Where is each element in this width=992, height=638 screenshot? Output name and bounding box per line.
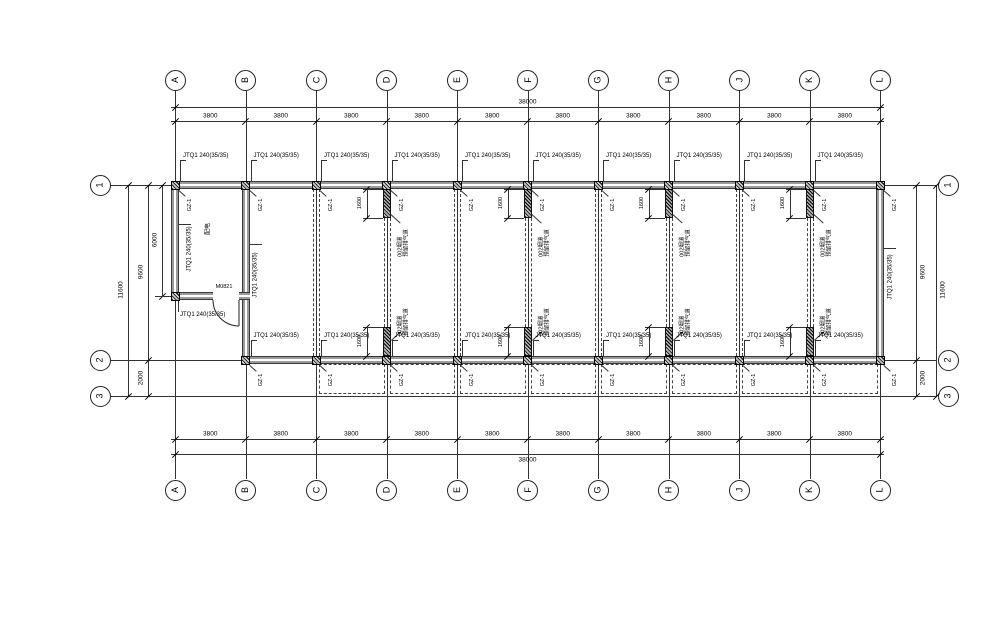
column (805, 181, 814, 190)
axis-bubble-label: F (523, 77, 533, 83)
stub-label-line2: 预留排气道 (827, 229, 833, 257)
room-label: 配电 (206, 223, 213, 235)
axis-bubble-bottom-6: G (588, 480, 609, 501)
column-tag: GZ-1 (257, 199, 263, 212)
door-swing-arc (210, 298, 246, 332)
leader-line (672, 214, 682, 223)
grid-line-3 (111, 396, 937, 397)
axis-bubble-label: K (804, 487, 814, 493)
stub-label-line1: 002烟道 (820, 308, 826, 336)
leader-line (319, 190, 326, 197)
wall-axis-B (242, 181, 250, 364)
partition-line (672, 218, 673, 327)
column-tag: GZ-1 (539, 199, 545, 212)
dim-text-bay-top: 3800 (697, 112, 711, 119)
dim-extension-line (392, 340, 393, 356)
grid-line-D (387, 91, 388, 479)
column-tag: GZ-1 (610, 374, 616, 387)
wall-label-top: JTQ1 240(35/35) (254, 153, 299, 160)
dim-line-right-total (936, 185, 937, 396)
stub-label: 002烟道预留排气道 (820, 229, 833, 257)
axis-bubble-bottom-0: A (165, 480, 186, 501)
dim-line-left-total (128, 185, 129, 396)
stub-label: 002烟道预留排气道 (397, 229, 410, 257)
column (594, 356, 603, 365)
dim-text-bay-top: 3800 (626, 112, 640, 119)
dim-text-bay-bottom: 3800 (485, 430, 499, 437)
stub-label: 002烟道预留排气道 (679, 229, 692, 257)
dim-text-bay-top: 3800 (838, 112, 852, 119)
axis-bubble-bottom-7: H (658, 480, 679, 501)
stub-wall (806, 189, 814, 218)
axis-bubble-bottom-1: B (235, 480, 256, 501)
axis-bubble-label: D (382, 77, 392, 84)
wall-label-top: JTQ1 240(35/35) (465, 153, 510, 160)
wall-axis-L (876, 181, 884, 364)
column (382, 356, 391, 365)
column-tag: GZ-1 (892, 199, 898, 212)
axis-bubble-label: G (593, 76, 603, 83)
column (312, 356, 321, 365)
dim-extension-line (815, 160, 816, 181)
stub-label-line2: 预留排气道 (404, 308, 410, 336)
leader-line (249, 365, 256, 372)
dim-extension-line (321, 340, 322, 356)
stub-label-line2: 预留排气道 (827, 308, 833, 336)
axis-bubble-label: G (593, 486, 603, 493)
stub-label-line2: 预留排气道 (686, 308, 692, 336)
column (735, 356, 744, 365)
column (523, 181, 532, 190)
dim-extension-line (674, 340, 675, 356)
wall-label-top: JTQ1 240(35/35) (747, 153, 792, 160)
dim-line-total-bottom (171, 454, 884, 455)
leader-line (460, 190, 467, 197)
partition-line (601, 189, 602, 356)
column (453, 356, 462, 365)
axis-bubble-bottom-4: E (447, 480, 468, 501)
axis-bubble-label: C (311, 487, 321, 494)
stub-label-line1: 002烟道 (538, 229, 544, 257)
stub-wall (524, 189, 532, 218)
leader-line (531, 214, 541, 223)
stub-wall (383, 189, 391, 218)
leader-line (601, 190, 608, 197)
dim-text-room-depth: 6000 (151, 233, 158, 247)
axis-bubble-label: F (523, 487, 533, 493)
axis-bubble-top-7: H (658, 70, 679, 91)
dim-extension-line (533, 340, 534, 356)
wall-label-top: JTQ1 240(35/35) (324, 153, 369, 160)
dim-line-stub (367, 327, 368, 356)
leader-line (813, 214, 823, 223)
grid-line-E (457, 91, 458, 479)
axis-bubble-label: H (664, 487, 674, 494)
wall-axis-A (171, 181, 179, 300)
dim-extension-line (250, 244, 262, 245)
stub-wall (665, 189, 673, 218)
dim-extension-line (815, 340, 816, 356)
dim-extension-line (533, 160, 534, 181)
column (664, 356, 673, 365)
dim-line-left-main (148, 185, 149, 396)
partition-line (595, 189, 596, 356)
leader-line (672, 190, 679, 197)
dim-text-stub: 1600 (356, 197, 362, 209)
stub-wall (383, 327, 391, 356)
column (171, 181, 180, 190)
dim-text-left-canopy: 2000 (137, 371, 144, 385)
axis-bubble-label: 1 (943, 182, 953, 187)
partition-line (736, 189, 737, 356)
axis-bubble-label: A (170, 487, 180, 493)
axis-bubble-label: H (664, 77, 674, 84)
column-tag: GZ-1 (821, 199, 827, 212)
axis-bubble-left-2: 3 (90, 386, 111, 407)
wall-label-bottom: JTQ1 240(35/35) (465, 333, 510, 340)
dim-text-total-bottom: 38000 (518, 456, 536, 463)
partition-line (460, 189, 461, 356)
stub-label-line1: 002烟道 (679, 229, 685, 257)
dim-extension-line (251, 340, 252, 356)
axis-bubble-bottom-9: K (799, 480, 820, 501)
leader-line (390, 190, 397, 197)
dim-extension-line (180, 160, 181, 181)
dim-text-bay-bottom: 3800 (203, 430, 217, 437)
partition-line (742, 189, 743, 356)
stub-wall (806, 327, 814, 356)
grid-line-K (810, 91, 811, 479)
column-tag: GZ-1 (398, 199, 404, 212)
dim-text-stub: 1600 (497, 197, 503, 209)
grid-line-J (739, 91, 740, 479)
dim-extension-line (603, 340, 604, 356)
dim-line-stub (790, 189, 791, 218)
column-tag: GZ-1 (257, 374, 263, 387)
column-tag: GZ-1 (680, 199, 686, 212)
column (241, 356, 250, 365)
axis-bubble-label: B (240, 487, 250, 493)
dim-text-bay-top: 3800 (556, 112, 570, 119)
column-tag: GZ-1 (398, 374, 404, 387)
dim-text-bay-top: 3800 (485, 112, 499, 119)
leader-line (883, 365, 890, 372)
axis-bubble-bottom-3: D (376, 480, 397, 501)
axis-bubble-top-4: E (447, 70, 468, 91)
leader-line (390, 214, 400, 223)
axis-bubble-top-0: A (165, 70, 186, 91)
axis-bubble-label: 1 (95, 182, 105, 187)
dim-line-stub (790, 327, 791, 356)
axis-bubble-label: 3 (943, 393, 953, 398)
axis-bubble-bottom-10: L (870, 480, 891, 501)
column-tag: GZ-1 (539, 374, 545, 387)
axis-bubble-top-1: B (235, 70, 256, 91)
column (735, 181, 744, 190)
axis-bubble-top-8: J (729, 70, 750, 91)
dim-extension-line (462, 160, 463, 181)
column-tag: GZ-1 (680, 374, 686, 387)
axis-bubble-top-5: F (517, 70, 538, 91)
wall-label-bottom: JTQ1 240(35/35) (747, 333, 792, 340)
axis-bubble-label: K (804, 77, 814, 83)
stub-label-line1: 002烟道 (397, 229, 403, 257)
axis-bubble-label: E (452, 77, 462, 83)
stub-label-line1: 002烟道 (397, 308, 403, 336)
wall-label-top: JTQ1 240(35/35) (536, 153, 581, 160)
axis-bubble-top-6: G (588, 70, 609, 91)
wall-label-bottom: JTQ1 240(35/35) (818, 333, 863, 340)
dim-extension-line (155, 296, 171, 297)
dim-text-total-top: 38000 (518, 98, 536, 105)
grid-line-F (528, 91, 529, 479)
column (453, 181, 462, 190)
leader-line (249, 190, 256, 197)
column-tag: GZ-1 (821, 374, 827, 387)
stub-label: 002烟道预留排气道 (538, 308, 551, 336)
grid-line-H (669, 91, 670, 479)
axis-bubble-top-9: K (799, 70, 820, 91)
dim-extension-line (674, 160, 675, 181)
wall-label-bottom: JTQ1 240(35/35) (677, 333, 722, 340)
stub-label-line1: 002烟道 (820, 229, 826, 257)
column-tag: GZ-1 (751, 374, 757, 387)
axis-bubble-label: B (240, 77, 250, 83)
partition-line (384, 218, 385, 327)
partition-line (525, 218, 526, 327)
column (664, 181, 673, 190)
axis-bubble-label: 2 (943, 357, 953, 362)
column (312, 181, 321, 190)
dim-text-stub: 1600 (779, 197, 785, 209)
column (805, 356, 814, 365)
dim-extension-line (744, 340, 745, 356)
leader-line (883, 190, 890, 197)
axis-bubble-label: J (734, 78, 744, 83)
dim-line-stub (367, 189, 368, 218)
partition-line (666, 218, 667, 327)
column-tag: GZ-1 (469, 374, 475, 387)
column (523, 356, 532, 365)
partition-line (319, 189, 320, 356)
dim-extension-line (744, 160, 745, 181)
stub-wall (665, 327, 673, 356)
wall-label-top: JTQ1 240(35/35) (395, 153, 440, 160)
stub-label-line2: 预留排气道 (545, 308, 551, 336)
stub-label: 002烟道预留排气道 (820, 308, 833, 336)
column (171, 292, 180, 301)
column-tag: GZ-1 (328, 199, 334, 212)
grid-line-G (598, 91, 599, 479)
stub-label: 002烟道预留排气道 (397, 308, 410, 336)
axis-bubble-right-1: 2 (938, 350, 959, 371)
dim-text-bay-bottom: 3800 (767, 430, 781, 437)
column-tag: GZ-1 (751, 199, 757, 212)
column-tag: GZ-1 (328, 374, 334, 387)
column (382, 181, 391, 190)
axis-bubble-bottom-8: J (729, 480, 750, 501)
floor-plan-canvas: AABBCCDDEEFFGGHHJJKKLL123123380038003800… (0, 0, 992, 638)
stub-label-line2: 预留排气道 (686, 229, 692, 257)
dim-text-right-canopy: 2000 (919, 371, 926, 385)
axis-bubble-label: J (734, 488, 744, 493)
axis-bubble-label: C (311, 77, 321, 84)
dim-line-right-main (916, 185, 917, 396)
stub-wall (524, 327, 532, 356)
dim-text-bay-top: 3800 (203, 112, 217, 119)
leader-line (813, 190, 820, 197)
dim-text-stub: 1600 (638, 197, 644, 209)
partition-line (813, 218, 814, 327)
column (241, 181, 250, 190)
dim-extension-line (462, 340, 463, 356)
column (594, 181, 603, 190)
dim-text-bay-bottom: 3800 (415, 430, 429, 437)
dim-text-right-total: 11600 (939, 281, 946, 299)
dim-line-stub (508, 189, 509, 218)
dim-line-stub (649, 327, 650, 356)
axis-bubble-right-2: 3 (938, 386, 959, 407)
wall-label-top: JTQ1 240(35/35) (818, 153, 863, 160)
partition-line (531, 218, 532, 327)
axis-bubble-label: D (382, 487, 392, 494)
axis-bubble-label: 3 (95, 393, 105, 398)
axis-bubble-top-3: D (376, 70, 397, 91)
dim-text-bay-top: 3800 (767, 112, 781, 119)
column-tag: GZ-1 (892, 374, 898, 387)
wall-label-bottom: JTQ1 240(35/35) (395, 333, 440, 340)
dim-extension-line (179, 224, 191, 225)
dim-extension-line (178, 301, 179, 312)
axis-bubble-label: 2 (95, 357, 105, 362)
stub-label-line2: 预留排气道 (545, 229, 551, 257)
partition-line (313, 189, 314, 356)
axis-bubble-label: L (875, 77, 885, 82)
dim-extension-line (884, 248, 896, 249)
axis-bubble-top-10: L (870, 70, 891, 91)
axis-bubble-label: A (170, 77, 180, 83)
wall-label-bottom: JTQ1 240(35/35) (324, 333, 369, 340)
dim-extension-line (392, 160, 393, 181)
partition-line (454, 189, 455, 356)
stub-label: 002烟道预留排气道 (679, 308, 692, 336)
wall-label-top: JTQ1 240(35/35) (606, 153, 651, 160)
wall-label-bottom: JTQ1 240(35/35) (536, 333, 581, 340)
dim-text-right-main: 9600 (919, 265, 926, 279)
dim-text-left-main: 9600 (137, 265, 144, 279)
dim-text-bay-top: 3800 (344, 112, 358, 119)
axis-bubble-left-0: 1 (90, 175, 111, 196)
dim-line-stub (649, 189, 650, 218)
stub-label: 002烟道预留排气道 (538, 229, 551, 257)
dim-extension-line (321, 160, 322, 181)
dim-text-bay-top: 3800 (274, 112, 288, 119)
wall-label-top: JTQ1 240(35/35) (183, 153, 228, 160)
axis-bubble-top-2: C (306, 70, 327, 91)
dim-text-bay-bottom: 3800 (274, 430, 288, 437)
dim-text-bay-bottom: 3800 (626, 430, 640, 437)
wall-label-vert-A: JTQ1 240(35/35) (187, 226, 194, 271)
dim-text-left-total: 11600 (117, 281, 124, 299)
dim-text-bay-bottom: 3800 (344, 430, 358, 437)
dim-text-bay-bottom: 3800 (556, 430, 570, 437)
axis-bubble-bottom-2: C (306, 480, 327, 501)
column-tag: GZ-1 (187, 199, 193, 212)
axis-bubble-label: E (452, 487, 462, 493)
wall-label-top: JTQ1 240(35/35) (677, 153, 722, 160)
axis-bubble-bottom-5: F (517, 480, 538, 501)
dim-extension-line (603, 160, 604, 181)
wall-label-bottom: JTQ1 240(35/35) (254, 333, 299, 340)
column (876, 356, 885, 365)
door-label: M0821 (216, 284, 233, 290)
leader-line (742, 190, 749, 197)
axis-bubble-label: L (875, 487, 885, 492)
leader-line (531, 190, 538, 197)
partition-line (807, 218, 808, 327)
stub-label-line1: 002烟道 (538, 308, 544, 336)
partition-line (390, 218, 391, 327)
dim-extension-line (251, 160, 252, 181)
dim-text-bay-top: 3800 (415, 112, 429, 119)
grid-line-C (316, 91, 317, 479)
axis-bubble-right-0: 1 (938, 175, 959, 196)
dim-line-room-depth (162, 185, 163, 296)
dim-text-bay-bottom: 3800 (697, 430, 711, 437)
axis-bubble-left-1: 2 (90, 350, 111, 371)
wall-label-vert-L: JTQ1 240(35/35) (888, 254, 895, 299)
column (876, 181, 885, 190)
dim-text-bay-bottom: 3800 (838, 430, 852, 437)
wall-label-bottom: JTQ1 240(35/35) (606, 333, 651, 340)
column-tag: GZ-1 (469, 199, 475, 212)
stub-label-line1: 002烟道 (679, 308, 685, 336)
leader-line (178, 190, 185, 197)
wall-label-vert-B: JTQ1 240(35/35) (253, 252, 260, 297)
column-tag: GZ-1 (610, 199, 616, 212)
dim-line-stub (508, 327, 509, 356)
stub-label-line2: 预留排气道 (404, 229, 410, 257)
dim-line-total-top (171, 107, 884, 108)
